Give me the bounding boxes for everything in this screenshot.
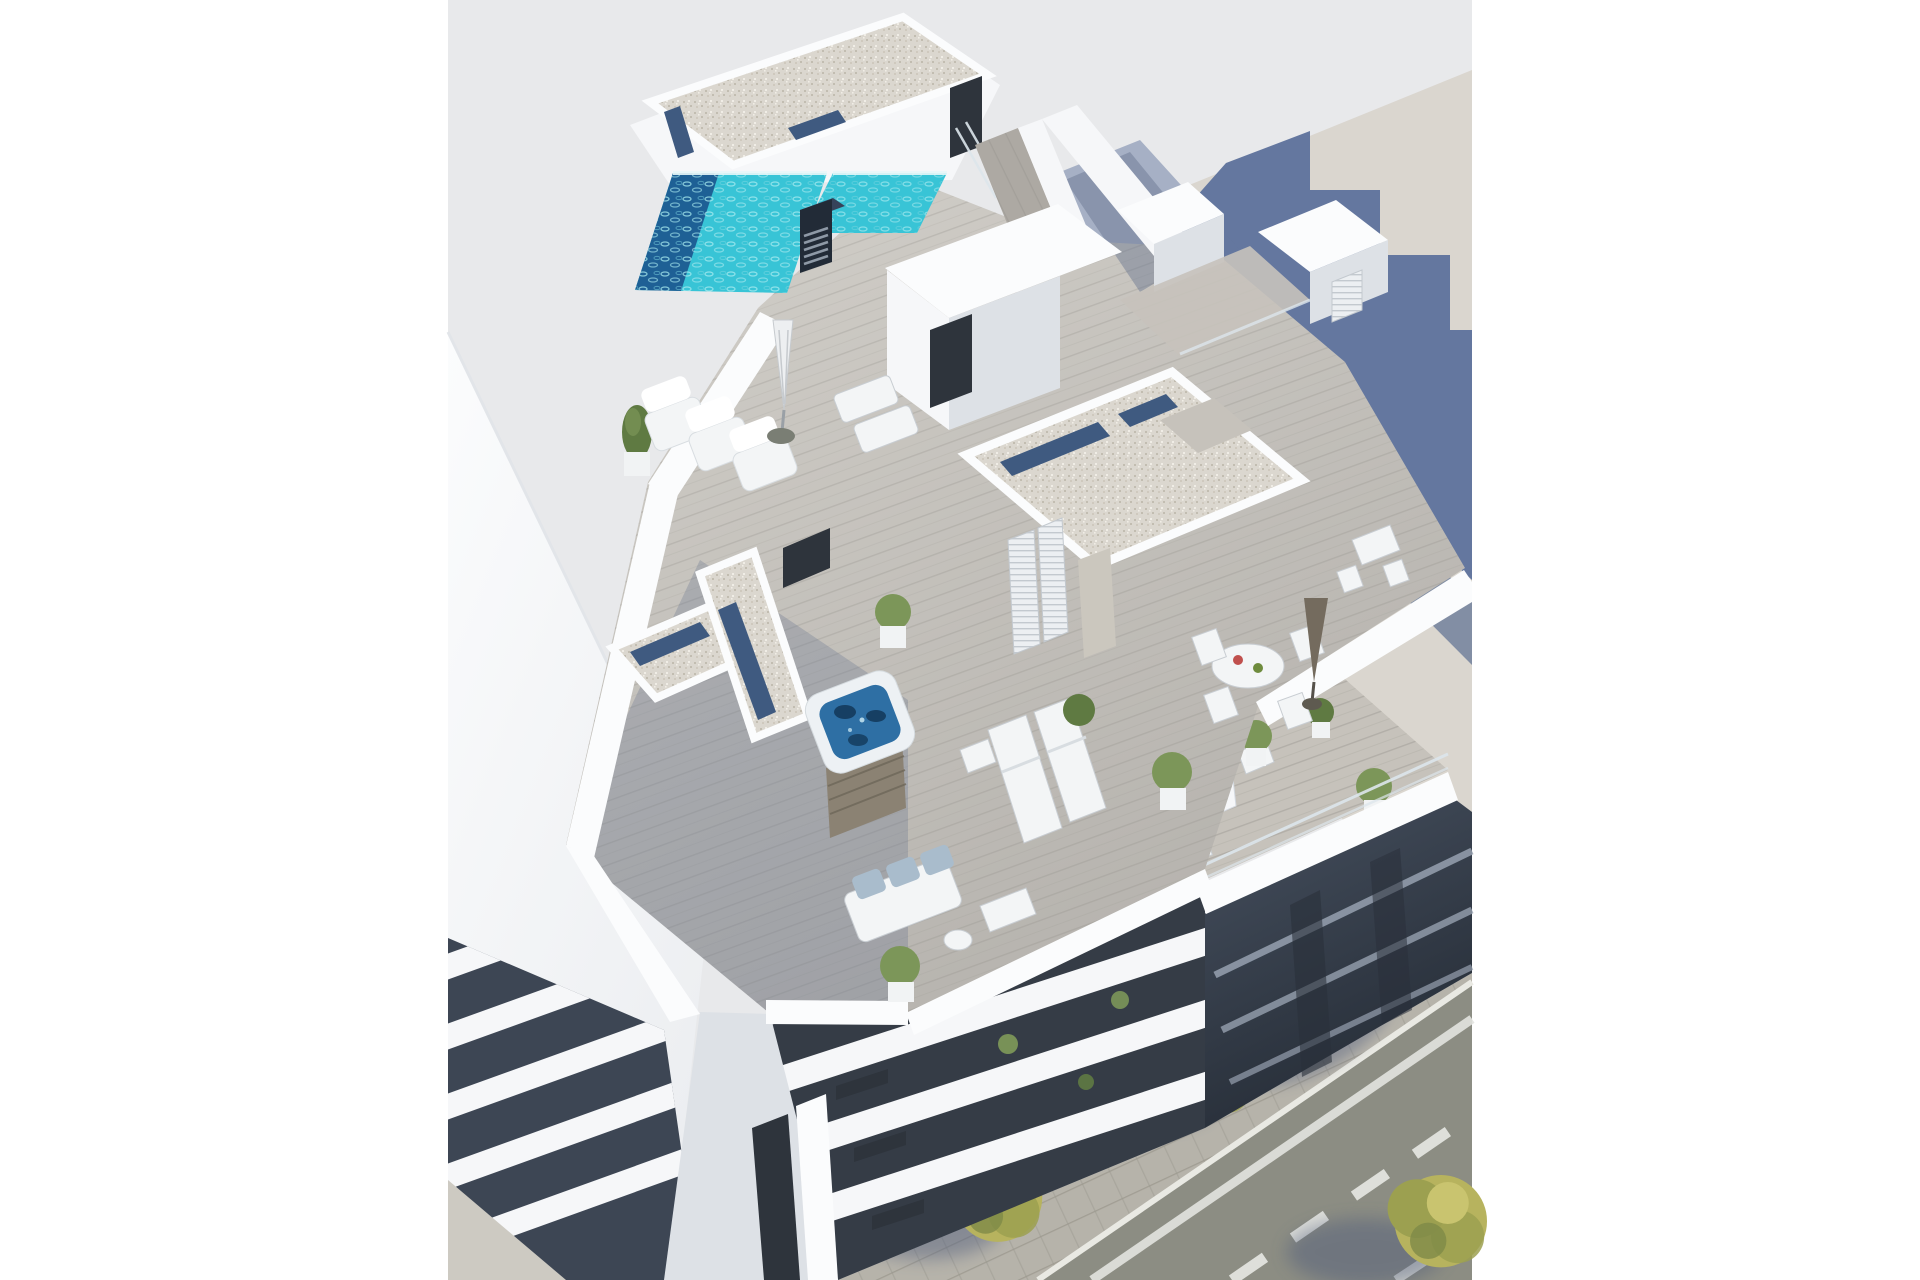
potted-plant [880,946,920,986]
table-plate [1253,663,1263,673]
jacuzzi-seat [848,734,868,746]
potted-plant [1063,694,1095,726]
plant-pot [880,626,906,648]
render-canvas [0,0,1920,1280]
louvered-shutter-door [1008,530,1040,654]
terrace-door [1078,548,1116,658]
plant-pot [624,452,650,476]
plant-pot [1160,788,1186,810]
plant-pot [1312,722,1330,738]
balcony-plant [1078,1074,1094,1090]
penthouse-door [930,314,972,408]
balcony-plant [1111,991,1129,1009]
potted-plant [875,594,911,630]
table-plate [1233,655,1243,665]
plant-pot [888,982,914,1002]
jacuzzi-seat [834,705,856,719]
potted-plant [1356,768,1392,804]
potted-plant [1152,752,1192,792]
parapet-south-wing [766,1000,908,1025]
plant-pot [1246,748,1266,766]
architectural-render [0,0,1920,1280]
cypress-highlight [625,408,641,436]
jacuzzi-seat [866,710,886,722]
balcony-plant [998,1034,1018,1054]
pouf [944,930,972,950]
